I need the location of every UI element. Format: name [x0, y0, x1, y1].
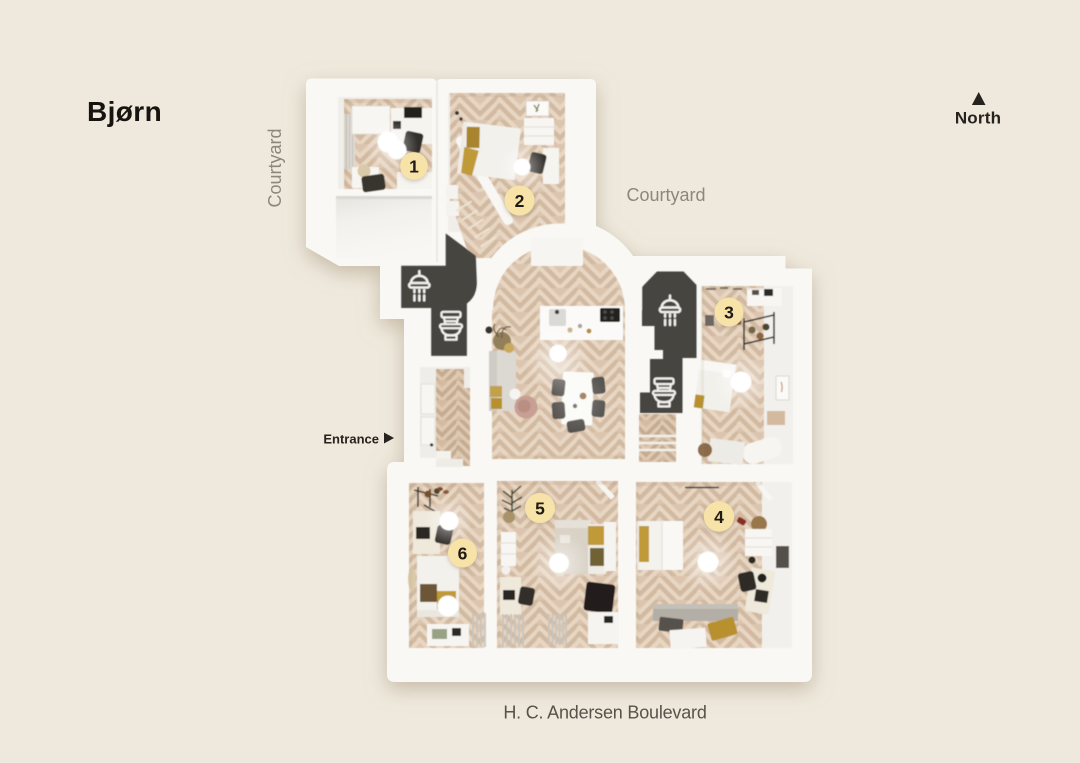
svg-text:Courtyard: Courtyard [265, 128, 285, 207]
svg-text:Entrance: Entrance [323, 432, 379, 447]
svg-text:2: 2 [515, 191, 525, 211]
svg-text:3: 3 [724, 302, 734, 322]
svg-text:North: North [955, 109, 1001, 128]
svg-text:4: 4 [714, 507, 724, 527]
svg-text:6: 6 [458, 543, 468, 563]
svg-text:Courtyard: Courtyard [626, 185, 705, 205]
svg-text:Bjørn: Bjørn [87, 96, 162, 127]
svg-text:H. C. Andersen Boulevard: H. C. Andersen Boulevard [503, 703, 706, 723]
svg-text:5: 5 [535, 498, 545, 518]
svg-text:1: 1 [409, 156, 419, 176]
